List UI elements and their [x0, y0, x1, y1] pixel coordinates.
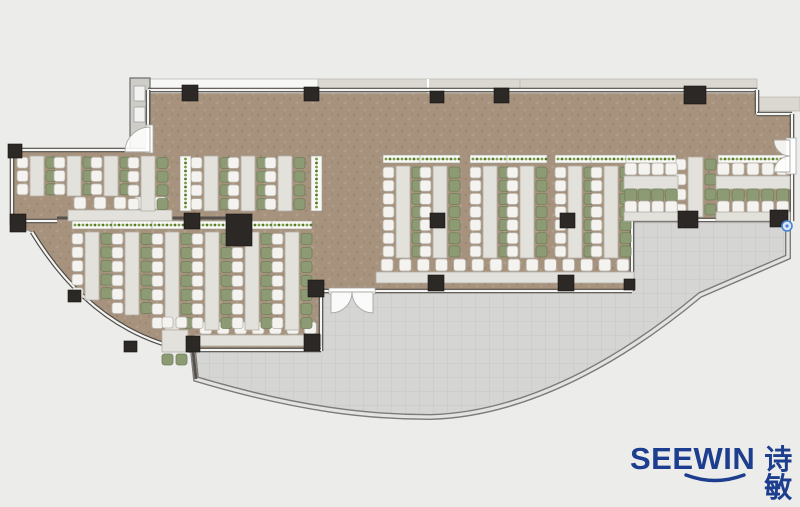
planter-plant	[776, 158, 779, 161]
planter-plant	[310, 224, 313, 227]
chair-white	[470, 193, 481, 204]
chair-white	[17, 184, 28, 195]
structural-column	[558, 275, 574, 291]
desk-strip	[716, 176, 790, 189]
chair-green	[221, 318, 232, 329]
chair-white	[762, 163, 774, 175]
planter-plant	[184, 178, 187, 181]
chair-green	[181, 304, 192, 315]
chair-white	[91, 157, 102, 168]
planter-plant	[605, 158, 608, 161]
chair-white	[228, 157, 239, 168]
chair-green	[638, 189, 650, 201]
planter-plant	[385, 158, 388, 161]
planter-plant	[500, 158, 503, 161]
planter-plant	[266, 224, 269, 227]
chair-white	[420, 207, 431, 218]
planter-plant	[668, 158, 671, 161]
planter-plant	[509, 158, 512, 161]
planter-plant	[166, 224, 169, 227]
chair-green	[221, 248, 232, 259]
planter-plant	[517, 158, 520, 161]
planter-plant	[170, 224, 173, 227]
chair-white	[591, 233, 602, 244]
planter-plant	[480, 158, 483, 161]
chair-green	[261, 248, 272, 259]
shaft-fixture	[134, 86, 145, 101]
chair-white	[717, 201, 729, 213]
planter-plant	[315, 178, 318, 181]
chair-green	[141, 247, 152, 258]
planter-plant	[748, 158, 751, 161]
planter-plant	[529, 158, 532, 161]
chair-white	[420, 193, 431, 204]
chair-green	[101, 233, 112, 244]
chair-white	[272, 248, 283, 259]
chair-green	[221, 304, 232, 315]
planter-plant	[660, 158, 663, 161]
desk-strip	[483, 166, 497, 258]
planter-plant	[565, 158, 568, 161]
planter-plant	[581, 158, 584, 161]
chair-green	[536, 167, 547, 178]
brand-logo: SEEWIN 诗敏	[630, 443, 800, 502]
chair-white	[381, 259, 393, 271]
planter-plant	[652, 158, 655, 161]
chair-white	[152, 318, 163, 329]
chair-white	[383, 246, 394, 257]
chair-white	[192, 304, 203, 315]
planter-plant	[184, 206, 187, 209]
chair-white	[232, 318, 243, 329]
chair-white	[152, 248, 163, 259]
chair-white	[112, 233, 123, 244]
chair-white	[152, 304, 163, 315]
planter-plant	[122, 224, 125, 227]
desk-strip	[520, 166, 534, 258]
planter-plant	[258, 224, 261, 227]
chair-green	[536, 220, 547, 231]
chair-green	[717, 189, 729, 201]
chair-white	[162, 317, 173, 328]
chair-white	[272, 234, 283, 245]
chair-white	[507, 207, 518, 218]
chair-white	[272, 276, 283, 287]
survey-marker-dot	[785, 224, 788, 227]
chair-white	[507, 167, 518, 178]
planter-plant	[740, 158, 743, 161]
chair-white	[470, 246, 481, 257]
planter-plant	[290, 224, 293, 227]
chair-white	[72, 261, 83, 272]
planter-plant	[302, 224, 305, 227]
chair-white	[507, 193, 518, 204]
chair-white	[272, 262, 283, 273]
chair-green	[176, 354, 187, 365]
counter	[68, 210, 172, 221]
brand-chinese-name: 诗敏	[764, 446, 800, 502]
chair-white	[128, 185, 139, 196]
planter-plant	[561, 158, 564, 161]
planter-plant	[458, 158, 461, 161]
planter-plant	[573, 158, 576, 161]
planter-plant	[315, 182, 318, 185]
planter-plant	[278, 224, 281, 227]
chair-green	[141, 233, 152, 244]
planter-plant	[184, 182, 187, 185]
planter-plant	[724, 158, 727, 161]
planter-plant	[86, 224, 89, 227]
planter-plant	[585, 158, 588, 161]
chair-white	[508, 259, 520, 271]
chair-green	[101, 261, 112, 272]
planter-plant	[306, 224, 309, 227]
chair-green	[157, 171, 168, 182]
chair-white	[555, 246, 566, 257]
planter-plant	[513, 158, 516, 161]
desk-strip	[30, 156, 44, 196]
chair-green	[181, 248, 192, 259]
planter-plant	[476, 158, 479, 161]
planter-plant	[488, 158, 491, 161]
planter-plant	[557, 158, 560, 161]
chair-green	[705, 204, 716, 215]
chair-white	[112, 247, 123, 258]
logo-swoosh-icon	[684, 473, 746, 485]
planter-plant	[184, 198, 187, 201]
chair-white	[420, 167, 431, 178]
chair-white	[507, 220, 518, 231]
planter-plant	[442, 158, 445, 161]
planter-plant	[154, 224, 157, 227]
chair-white	[128, 199, 139, 210]
planter-plant	[764, 158, 767, 161]
planter-plant	[102, 224, 105, 227]
chair-green	[449, 167, 460, 178]
planter-plant	[736, 158, 739, 161]
structural-column	[226, 214, 252, 246]
planter-plant	[496, 158, 499, 161]
planter-plant	[114, 224, 117, 227]
planter-plant	[315, 206, 318, 209]
planter-plant	[315, 194, 318, 197]
chair-white	[17, 157, 28, 168]
chair-white	[191, 171, 202, 182]
counter	[624, 212, 678, 221]
chair-green	[777, 189, 789, 201]
chair-white	[383, 233, 394, 244]
chair-green	[221, 262, 232, 273]
planter-plant	[422, 158, 425, 161]
chair-white	[272, 318, 283, 329]
chair-white	[591, 220, 602, 231]
chair-white	[591, 193, 602, 204]
chair-green	[301, 234, 312, 245]
planter-plant	[644, 158, 647, 161]
desk-strip	[688, 157, 703, 217]
chair-green	[157, 157, 168, 168]
chair-white	[232, 304, 243, 315]
chair-green	[294, 185, 305, 196]
planter-plant	[426, 158, 429, 161]
chair-white	[470, 233, 481, 244]
planter-plant	[636, 158, 639, 161]
planter-plant	[282, 224, 285, 227]
chair-white	[112, 303, 123, 314]
planter-plant	[184, 194, 187, 197]
planter-plant	[98, 224, 101, 227]
chair-green	[301, 262, 312, 273]
desk-strip	[604, 166, 618, 258]
chair-white	[232, 290, 243, 301]
chair-white	[191, 185, 202, 196]
planter-plant	[597, 158, 600, 161]
chair-white	[192, 318, 203, 329]
chair-green	[141, 289, 152, 300]
planter-plant	[315, 166, 318, 169]
chair-white	[507, 246, 518, 257]
planter-plant	[178, 224, 181, 227]
planter-plant	[184, 162, 187, 165]
chair-white	[383, 193, 394, 204]
desk-strip	[85, 232, 99, 300]
chair-green	[294, 199, 305, 210]
chair-white	[507, 233, 518, 244]
planter-plant	[389, 158, 392, 161]
planter-plant	[648, 158, 651, 161]
planter-plant	[664, 158, 667, 161]
chair-white	[747, 201, 759, 213]
chair-white	[54, 184, 65, 195]
chair-white	[470, 220, 481, 231]
chair-white	[192, 248, 203, 259]
chair-green	[449, 207, 460, 218]
planter-plant	[298, 224, 301, 227]
planter-plant	[472, 158, 475, 161]
planter-plant	[90, 224, 93, 227]
chair-green	[536, 246, 547, 257]
chair-white	[272, 290, 283, 301]
chair-white	[472, 259, 484, 271]
planter-plant	[106, 224, 109, 227]
structural-column	[68, 290, 81, 302]
chair-green	[536, 180, 547, 191]
structural-column	[8, 144, 22, 158]
planter-plant	[450, 158, 453, 161]
desk-strip	[624, 176, 678, 189]
chair-white	[420, 233, 431, 244]
planter-plant	[134, 224, 137, 227]
chair-white	[192, 262, 203, 273]
small-table	[162, 330, 188, 352]
counter	[376, 272, 634, 283]
chair-white	[176, 317, 187, 328]
planter-plant	[315, 158, 318, 161]
planter-plant	[601, 158, 604, 161]
planter-plant	[184, 190, 187, 193]
chair-green	[665, 189, 677, 201]
planter-plant	[162, 224, 165, 227]
planter-plant	[752, 158, 755, 161]
chair-white	[544, 259, 556, 271]
chair-white	[383, 167, 394, 178]
planter-plant	[222, 224, 225, 227]
chair-white	[581, 259, 593, 271]
planter-plant	[446, 158, 449, 161]
planter-plant	[274, 224, 277, 227]
chair-white	[265, 157, 276, 168]
chair-green	[620, 246, 631, 257]
chair-white	[399, 259, 411, 271]
chair-white	[638, 163, 650, 175]
desk-strip	[245, 232, 259, 330]
chair-green	[162, 354, 173, 365]
chair-white	[470, 167, 481, 178]
chair-green	[301, 318, 312, 329]
chair-green	[141, 261, 152, 272]
planter-plant	[413, 158, 416, 161]
chair-green	[705, 174, 716, 185]
desk-strip	[204, 156, 218, 211]
chair-green	[181, 262, 192, 273]
planter-plant	[94, 224, 97, 227]
structural-column	[430, 213, 445, 228]
planter-plant	[438, 158, 441, 161]
chair-white	[555, 193, 566, 204]
chair-green	[294, 171, 305, 182]
deck-strip	[758, 97, 800, 111]
chair-white	[72, 274, 83, 285]
chair-white	[228, 185, 239, 196]
planter-plant	[210, 224, 213, 227]
planter-plant	[609, 158, 612, 161]
chair-green	[449, 246, 460, 257]
planter-plant	[174, 224, 177, 227]
planter-plant	[126, 224, 129, 227]
chair-white	[72, 233, 83, 244]
planter-plant	[593, 158, 596, 161]
chair-white	[91, 171, 102, 182]
chair-white	[665, 163, 677, 175]
planter-plant	[78, 224, 81, 227]
desk-strip	[568, 166, 582, 258]
chair-green	[221, 276, 232, 287]
planter-plant	[640, 158, 643, 161]
structural-column	[304, 87, 319, 101]
chair-white	[152, 276, 163, 287]
planter-plant	[146, 224, 149, 227]
chair-green	[261, 290, 272, 301]
chair-green	[536, 233, 547, 244]
chair-white	[232, 276, 243, 287]
brand-wordmark: SEEWIN	[630, 443, 755, 474]
chair-green	[294, 157, 305, 168]
chair-green	[449, 180, 460, 191]
chair-white	[128, 157, 139, 168]
chair-green	[449, 233, 460, 244]
chair-green	[141, 303, 152, 314]
chair-green	[301, 248, 312, 259]
planter-plant	[533, 158, 536, 161]
chair-white	[192, 276, 203, 287]
chair-green	[762, 189, 774, 201]
structural-column	[430, 91, 444, 103]
chair-white	[91, 184, 102, 195]
chair-white	[490, 259, 502, 271]
desk-strip	[205, 232, 219, 330]
structural-column	[494, 88, 509, 103]
chair-white	[591, 246, 602, 257]
structural-column	[560, 213, 575, 228]
chair-white	[383, 180, 394, 191]
chair-white	[732, 163, 744, 175]
chair-white	[591, 167, 602, 178]
structural-column	[308, 280, 324, 297]
chair-white	[54, 157, 65, 168]
planter-plant	[315, 198, 318, 201]
planter-plant	[286, 224, 289, 227]
chair-white	[555, 233, 566, 244]
desk-strip	[285, 232, 299, 330]
chair-white	[599, 259, 611, 271]
chair-green	[747, 189, 759, 201]
structural-column	[124, 341, 137, 352]
planter-plant	[184, 174, 187, 177]
planter-plant	[82, 224, 85, 227]
chair-white	[420, 180, 431, 191]
chair-green	[101, 247, 112, 258]
chair-green	[301, 304, 312, 315]
planter-plant	[760, 158, 763, 161]
planter-plant	[158, 224, 161, 227]
structural-column	[624, 279, 635, 290]
chair-white	[192, 234, 203, 245]
chair-white	[591, 180, 602, 191]
structural-column	[304, 334, 320, 351]
planter-plant	[656, 158, 659, 161]
planter-plant	[613, 158, 616, 161]
planter-plant	[732, 158, 735, 161]
chair-white	[112, 275, 123, 286]
chair-white	[717, 163, 729, 175]
planter-plant	[206, 224, 209, 227]
planter-plant	[184, 202, 187, 205]
chair-white	[152, 290, 163, 301]
planter-plant	[202, 224, 205, 227]
chair-white	[265, 171, 276, 182]
planter-plant	[401, 158, 404, 161]
chair-white	[17, 171, 28, 182]
planter-plant	[262, 224, 265, 227]
chair-white	[617, 259, 629, 271]
floorplan-drawing	[0, 0, 800, 507]
chair-white	[732, 201, 744, 213]
planter-plant	[405, 158, 408, 161]
planter-plant	[484, 158, 487, 161]
chair-white	[72, 247, 83, 258]
planter-plant	[628, 158, 631, 161]
planter-plant	[537, 158, 540, 161]
structural-column	[428, 275, 444, 291]
planter-plant	[545, 158, 548, 161]
chair-white	[94, 197, 106, 209]
planter-plant	[315, 174, 318, 177]
planter-plant	[214, 224, 217, 227]
desk-strip	[241, 156, 255, 211]
chair-white	[470, 180, 481, 191]
planter-plant	[294, 224, 297, 227]
planter-plant	[504, 158, 507, 161]
